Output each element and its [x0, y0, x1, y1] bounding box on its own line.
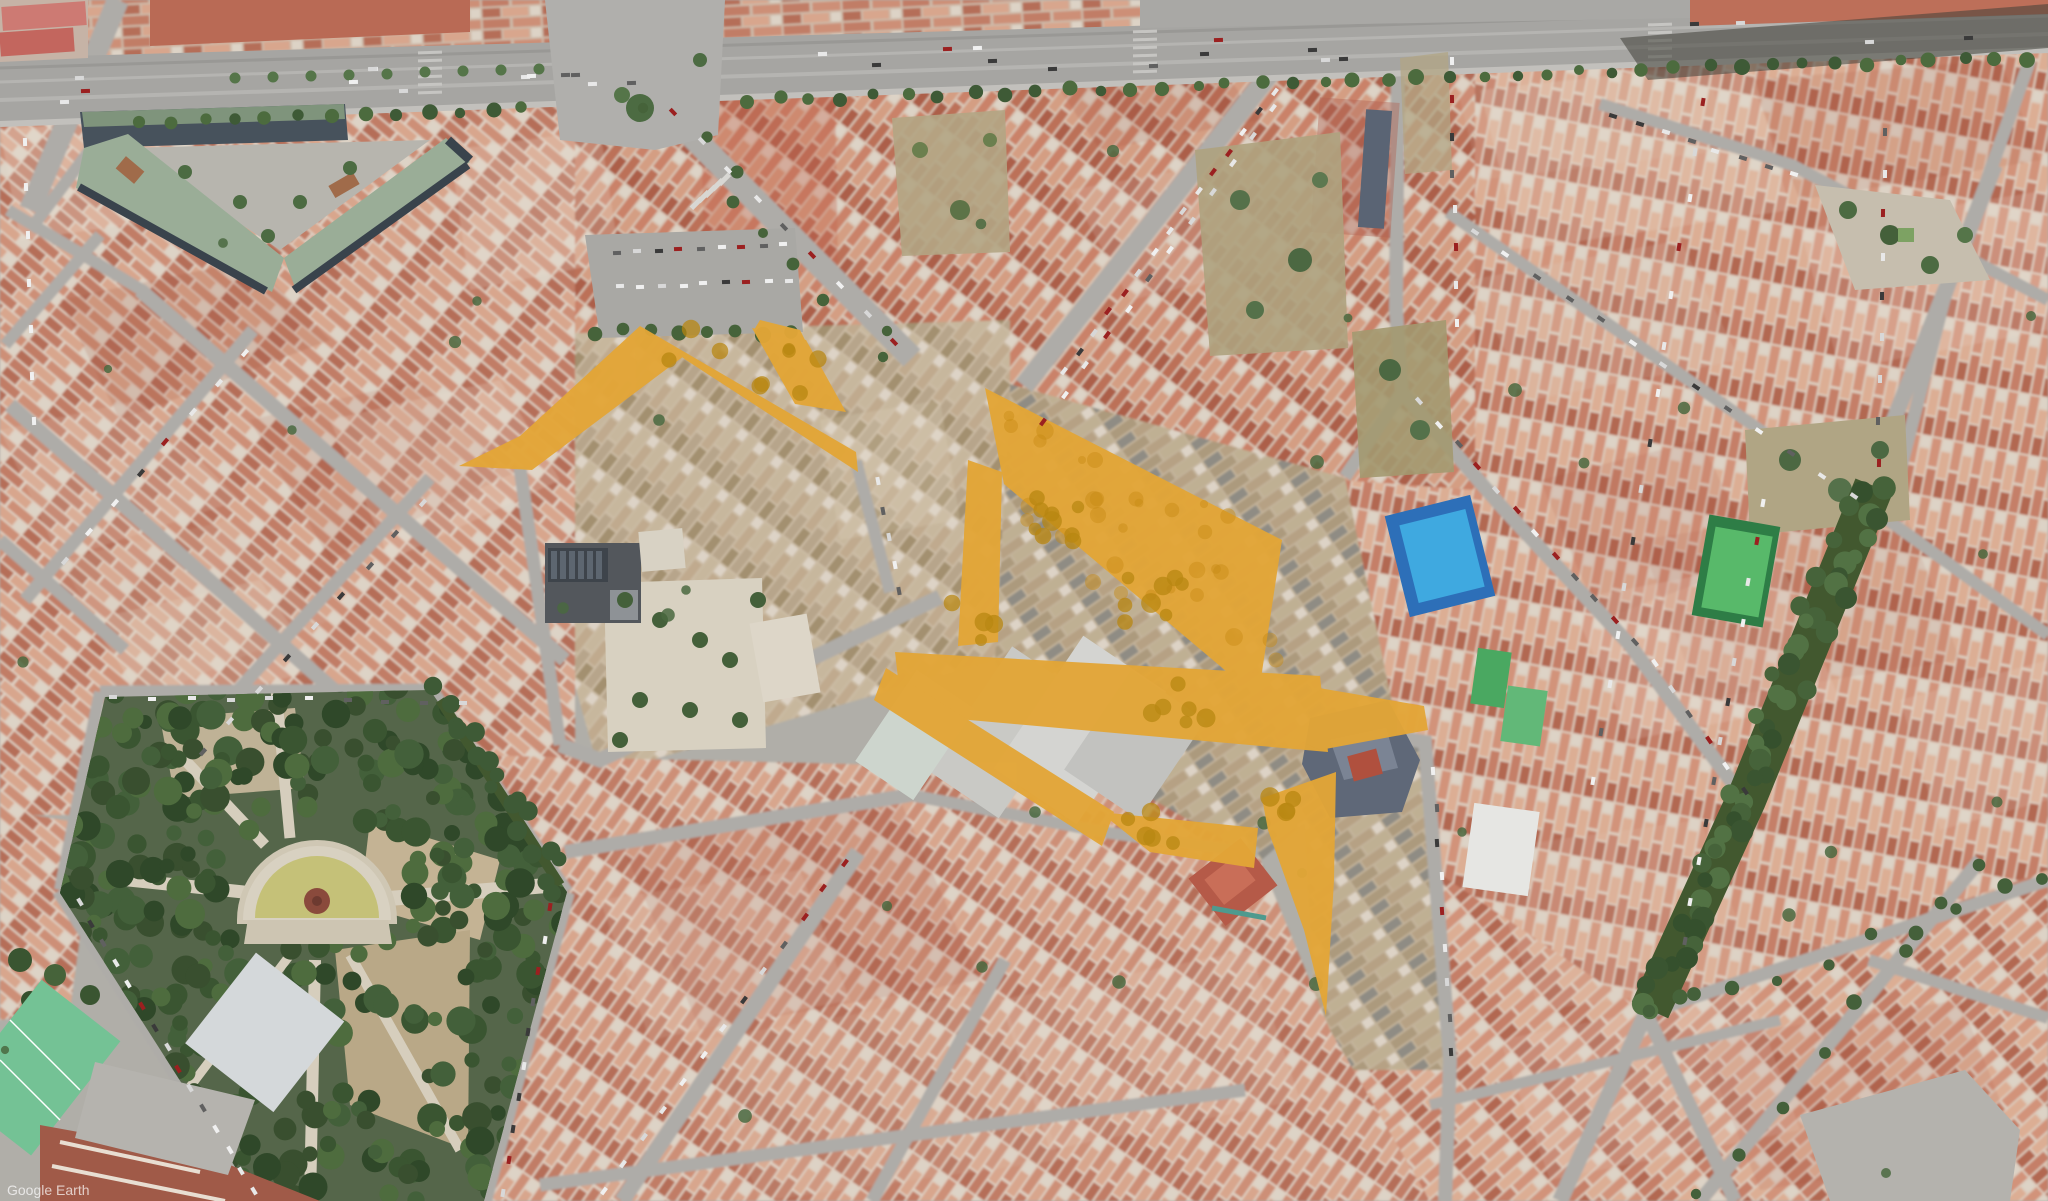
svg-text:Google Earth: Google Earth [7, 1182, 90, 1198]
